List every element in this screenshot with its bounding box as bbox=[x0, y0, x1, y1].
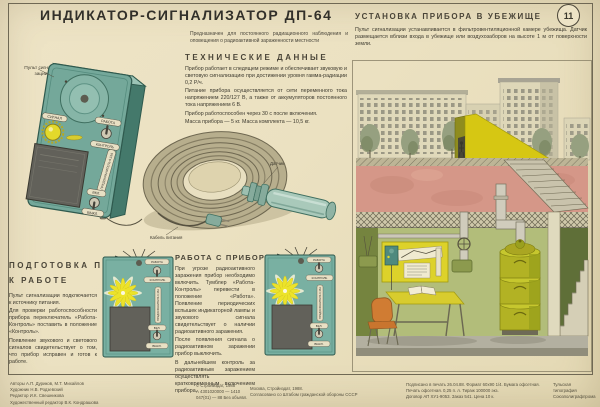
shelter-section-heading: УСТАНОВКА ПРИБОРА В УБЕЖИЩЕ bbox=[355, 12, 542, 21]
sensor-label: Датчик bbox=[270, 161, 284, 166]
poster: ИНДИКАТОР-СИГНАЛИЗАТОР ДП-64 11 Предназн… bbox=[0, 0, 600, 407]
credits-line: Согласовано со Штабом гражданской оборон… bbox=[250, 392, 362, 398]
filter-unit bbox=[500, 240, 540, 336]
work-label: РАБОТА bbox=[313, 258, 325, 262]
pointer-marker bbox=[66, 135, 82, 140]
fuse-label: ПРЕДОХРАНИТЕЛЬ 0,15А bbox=[156, 289, 160, 321]
credits-authors: Авторы А.П. Дуриков, М.Т. Михайлов Худож… bbox=[10, 381, 160, 406]
credits-copyright: © Стройиздат, 1988 А 4301020000 — 1410 0… bbox=[196, 383, 251, 402]
operation-paragraph: После появления сигнала о радиоактивном … bbox=[175, 337, 255, 358]
prep-inset-panel: РАБОТА КОНТРОЛЬ ПРЕДОХРАНИТЕЛЬ 0,15А ВКЛ… bbox=[101, 249, 175, 361]
poster-title: ИНДИКАТОР-СИГНАЛИЗАТОР ДП-64 bbox=[40, 7, 332, 23]
prep-paragraph: Пульт сигнализации подключается к источн… bbox=[9, 293, 97, 307]
credits-line: Художественный редактор В.К. Кондрашова bbox=[10, 400, 160, 406]
valve-wheel-icon bbox=[458, 238, 470, 250]
on-label: ВКЛ. bbox=[316, 324, 323, 328]
prep-paragraph: Появление звукового и светового сигналов… bbox=[9, 338, 97, 366]
prep-paragraph: Для проверки работоспособности прибора п… bbox=[9, 308, 97, 336]
shelter-section-text: Пульт сигнализации устанавливается в фил… bbox=[355, 27, 587, 48]
operation-paragraph: При угрозе радиоактивного заражения приб… bbox=[175, 266, 255, 336]
work-label: РАБОТА bbox=[151, 260, 163, 264]
signal-console: СИГНАЛ РАБОТА КОНТРОЛЬ ПРЕДОХРАНИТЕЛЬ 0,… bbox=[25, 63, 146, 221]
control-label: КОНТРОЛЬ bbox=[312, 276, 328, 280]
instruction-plate bbox=[26, 144, 88, 208]
prep-text: Пульт сигнализации подключается к источн… bbox=[9, 293, 97, 367]
on-label: ВКЛ. bbox=[154, 326, 161, 330]
fuse-label: ПРЕДОХРАНИТЕЛЬ 0,15А bbox=[318, 287, 322, 319]
credits-print-info: Подписано в печать 26.04.88. Формат 60х9… bbox=[406, 382, 554, 401]
credits-line: Союзполиграфпрома bbox=[553, 394, 593, 400]
operation-text: При угрозе радиоактивного заражения приб… bbox=[175, 266, 255, 396]
page-number: 11 bbox=[564, 11, 574, 21]
cable-label: Кабель питания bbox=[150, 235, 183, 240]
shelter-illustration bbox=[352, 60, 592, 372]
instruction-plate bbox=[110, 307, 150, 351]
credits-printer: Тульская типография Союзполиграфпрома bbox=[553, 382, 593, 401]
page-number-badge: 11 bbox=[557, 4, 580, 27]
off-label: ВЫКЛ. bbox=[152, 344, 161, 348]
scan-edge bbox=[0, 0, 3, 407]
device-illustration: Кабель питания СИГНАЛ bbox=[8, 55, 353, 250]
fuse-plate: ПРЕДОХРАНИТЕЛЬ 0,15А bbox=[317, 285, 323, 321]
shelter-room bbox=[356, 212, 588, 356]
credits-line: 047(01) — 88 Без объявл. bbox=[196, 395, 251, 401]
credits-city: Москва, Стройиздат, 1988. Согласовано со… bbox=[250, 386, 362, 398]
operation-inset-panel: РАБОТА КОНТРОЛЬ ПРЕДОХРАНИТЕЛЬ 0,15А ВКЛ… bbox=[261, 247, 339, 359]
instruction-plate bbox=[272, 305, 312, 349]
credits-line: Договор АП ХУ1-9053. Заказ 541. Цена 10 … bbox=[406, 394, 554, 400]
fuse-plate: ПРЕДОХРАНИТЕЛЬ 0,15А bbox=[155, 287, 161, 323]
poster-intro: Предназначен для постоянного радиационно… bbox=[190, 31, 348, 45]
control-label: КОНТРОЛЬ bbox=[150, 278, 166, 282]
support-column bbox=[548, 212, 560, 336]
off-label: ВЫКЛ. bbox=[314, 342, 323, 346]
